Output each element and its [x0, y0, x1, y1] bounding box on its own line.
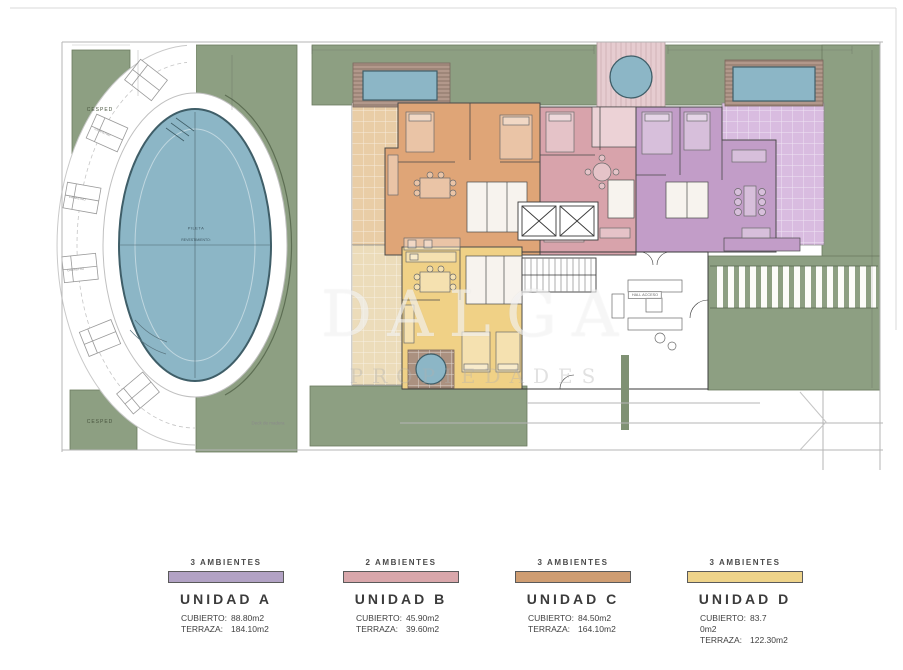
unit-name: UNIDAD B: [343, 591, 459, 607]
cubierto-label: CUBIERTO:: [181, 613, 231, 624]
unit-d-jacuzzi: [408, 350, 454, 388]
cubierto-value: 88.80m2: [231, 613, 264, 624]
unit-b-balcony: [592, 107, 636, 147]
terrace-pool-a: [725, 60, 823, 106]
cubierto-value: 84.50m2: [578, 613, 611, 624]
legend-unit-d: 3 AMBIENTES UNIDAD D CUBIERTO:83.7 0m2 T…: [687, 558, 803, 646]
unit-name: UNIDAD D: [687, 591, 803, 607]
site-plan: CAMASTRO CAMASTRO CAMASTRO: [0, 0, 903, 520]
ambientes-label: 2 AMBIENTES: [343, 558, 459, 567]
terraza-label: TERRAZA:: [356, 624, 406, 635]
lawn-bottom-strip: [310, 386, 527, 446]
legend-unit-b: 2 AMBIENTES UNIDAD B CUBIERTO:45.90m2 TE…: [343, 558, 459, 635]
entry-hedge: [621, 355, 629, 430]
terraza-label: TERRAZA:: [528, 624, 578, 635]
staircase: [522, 258, 596, 292]
lawn-label-bottom: CESPED: [87, 419, 114, 425]
cubierto-value: 45.90m2: [406, 613, 439, 624]
cubierto-value: 83.7: [750, 613, 767, 624]
cubierto-label: CUBIERTO:: [356, 613, 406, 624]
terraza-value: 122.30m2: [750, 635, 788, 646]
terraza-value: 164.10m2: [578, 624, 616, 635]
legend-unit-a: 3 AMBIENTES UNIDAD A CUBIERTO:88.80m2 TE…: [168, 558, 284, 635]
unit-specs: CUBIERTO:84.50m2 TERRAZA:164.10m2: [515, 613, 631, 635]
jacuzzi-deck-top: [597, 42, 665, 108]
unit-specs: CUBIERTO:45.90m2 TERRAZA:39.60m2: [343, 613, 459, 635]
main-pool: [118, 109, 272, 381]
lawn-label-top: CESPED: [87, 107, 114, 113]
unit-name: UNIDAD C: [515, 591, 631, 607]
deck-label: Deck de madera: [251, 421, 284, 426]
floor-plan-page: CAMASTRO CAMASTRO CAMASTRO: [0, 0, 903, 670]
ambientes-label: 3 AMBIENTES: [515, 558, 631, 567]
pergola: [710, 266, 878, 308]
hall-label: HALL ACCESO: [628, 291, 662, 299]
terrace-pool-c: [353, 63, 450, 107]
color-swatch-d: [687, 571, 803, 583]
unit-name: UNIDAD A: [168, 591, 284, 607]
terraza-value: 184.10m2: [231, 624, 269, 635]
pool-label: PILETA: [188, 226, 205, 231]
unit-specs: CUBIERTO:83.7 0m2 TERRAZA:122.30m2: [687, 613, 803, 646]
ambientes-label: 3 AMBIENTES: [687, 558, 803, 567]
terraza-label: TERRAZA:: [181, 624, 231, 635]
elevator-core: [518, 202, 598, 240]
color-swatch-a: [168, 571, 284, 583]
terraza-value: 39.60m2: [406, 624, 439, 635]
unit-specs: CUBIERTO:88.80m2 TERRAZA:184.10m2: [168, 613, 284, 635]
unit-a-kitchen-strip: [724, 238, 800, 251]
color-swatch-c: [515, 571, 631, 583]
cubierto-label: CUBIERTO:: [700, 613, 750, 624]
legend-unit-c: 3 AMBIENTES UNIDAD C CUBIERTO:84.50m2 TE…: [515, 558, 631, 635]
terraza-label: TERRAZA:: [700, 635, 750, 646]
ambientes-label: 3 AMBIENTES: [168, 558, 284, 567]
cubierto-overflow: 0m2: [700, 624, 803, 635]
cubierto-label: CUBIERTO:: [528, 613, 578, 624]
pool-finish-label: REVESTIMIENTO:: [181, 238, 211, 242]
color-swatch-b: [343, 571, 459, 583]
